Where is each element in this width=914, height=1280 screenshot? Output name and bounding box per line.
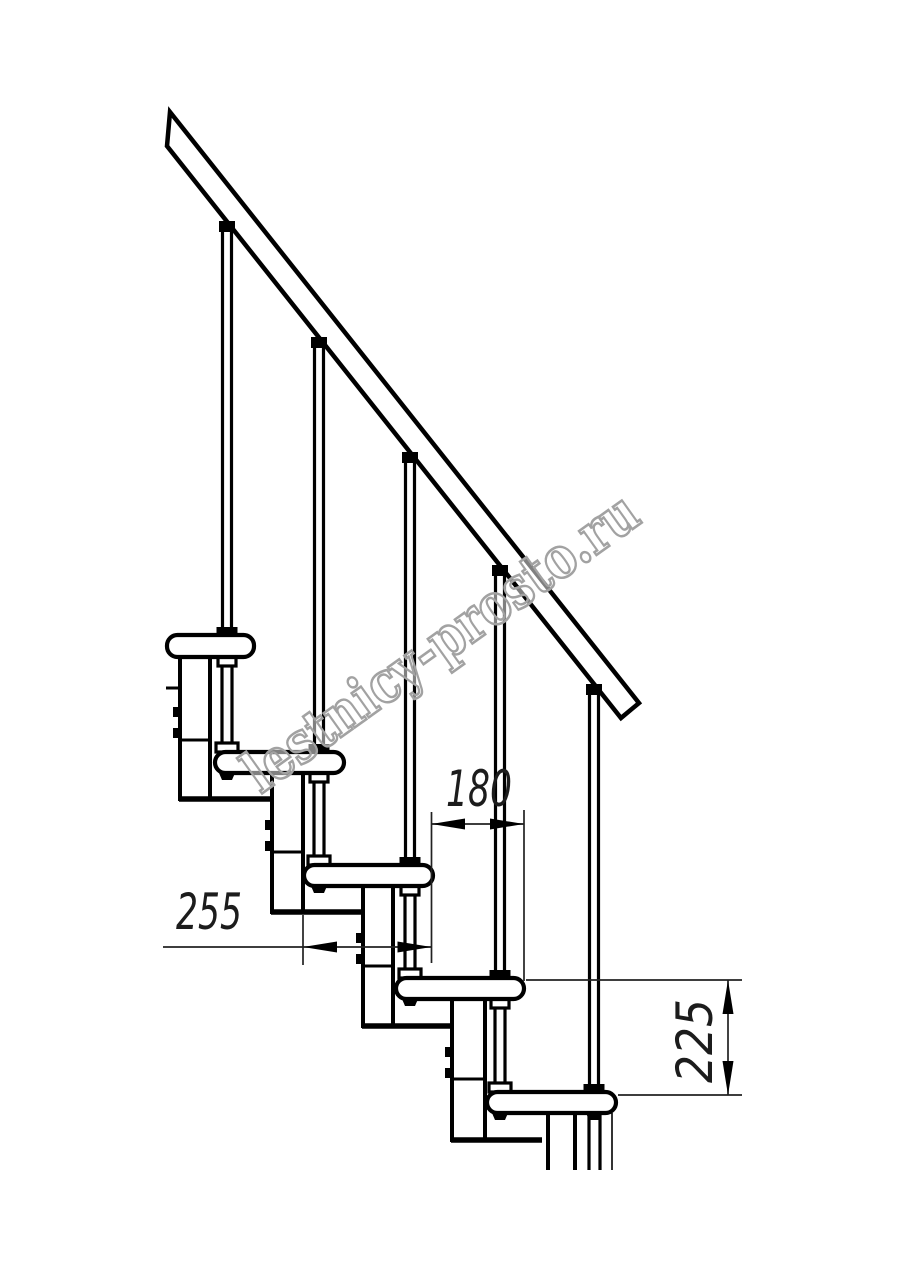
arrow-left-icon [432,819,466,830]
lower-structure-cutoff [548,1113,612,1170]
baluster [217,221,238,636]
nut-icon [219,773,235,780]
bolt-icon [173,728,182,738]
nut-icon [311,886,327,893]
baluster-bottom-collar [400,857,421,866]
baluster [584,684,605,1093]
bolt-icon [445,1068,454,1078]
baluster-bottom-collar [490,970,511,979]
support-post [399,886,421,978]
bolt-icon [356,954,365,964]
baluster-bottom-collar [584,1084,605,1093]
tread [487,1092,616,1113]
baluster-top-collar [219,221,235,232]
support-post [216,657,238,752]
dimension-value-255: 255 [176,883,242,941]
bolt-icon [445,1047,454,1057]
baluster-top-collar [402,452,418,463]
tread [304,865,433,886]
baluster-bottom-collar [217,627,238,636]
staircase-technical-drawing: 180 255 225 lestnicy-prosto.ru [0,0,914,1280]
arrow-up-icon [723,980,734,1014]
nut-icon [402,999,418,1006]
dimension-value-180: 180 [446,760,512,818]
baluster-top-collar [311,337,327,348]
bolt-icon [265,841,274,851]
arrow-left-icon [303,942,337,953]
support-post [589,1113,600,1170]
tread [167,635,254,657]
bolt-icon [265,820,274,830]
support-post [489,999,511,1092]
arrow-down-icon [723,1061,734,1095]
baluster-top-collar [586,684,602,695]
dimension-value-225: 225 [666,999,724,1083]
tread [396,978,524,999]
nut-icon [492,1113,508,1120]
dimension-180: 180 [432,760,525,981]
bolt-icon [356,933,365,943]
drawing-page: 180 255 225 lestnicy-prosto.ru [0,0,914,1280]
dimension-225: 225 [526,980,742,1095]
arrow-right-icon [490,819,524,830]
support-post [308,773,330,865]
bolt-icon [173,707,182,717]
